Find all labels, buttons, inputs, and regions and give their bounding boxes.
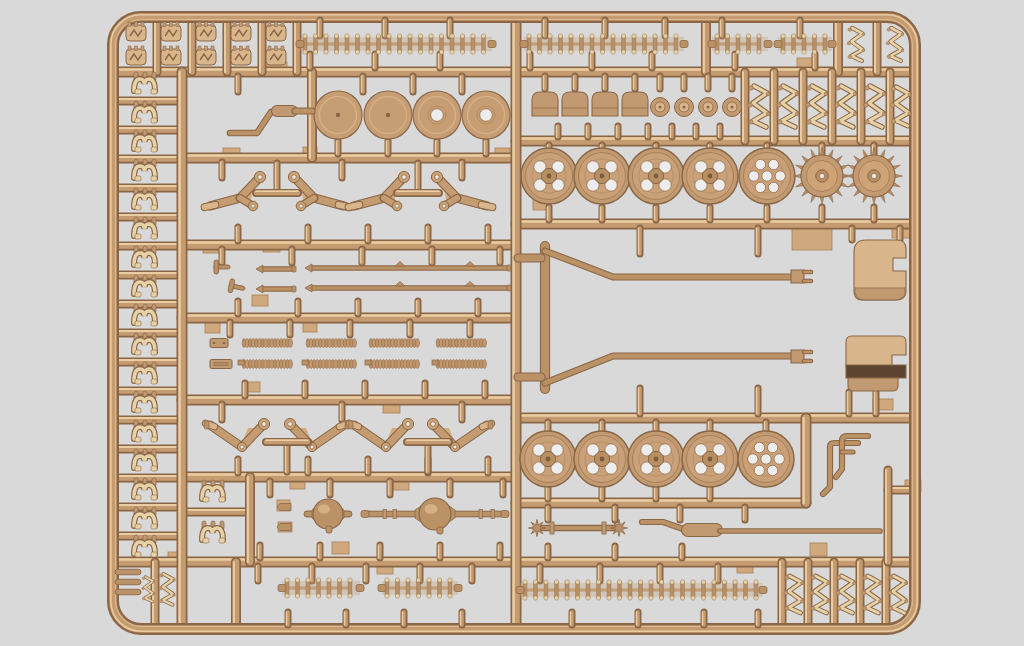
runner-bar	[182, 243, 512, 245]
gate-post	[706, 76, 708, 89]
hatch-part	[562, 92, 588, 116]
tee-crossbar	[397, 191, 439, 193]
gate-post	[650, 54, 652, 68]
gate-post	[258, 545, 260, 558]
gate-post	[603, 20, 605, 36]
idler-wheel	[739, 148, 795, 204]
runner-bar	[859, 72, 861, 141]
runner-bar	[260, 17, 262, 72]
return-roller-disc	[462, 91, 510, 139]
gate-post	[236, 301, 238, 314]
runner-bar	[310, 72, 312, 158]
gate-post	[470, 566, 472, 581]
gate-post	[243, 383, 245, 396]
gate-post	[694, 126, 696, 137]
gate-post	[663, 20, 665, 36]
gate-post	[306, 227, 308, 241]
runner-bar	[113, 418, 182, 420]
hub-cap	[675, 98, 694, 117]
coil-spring	[365, 360, 420, 369]
gate-post	[256, 566, 258, 581]
runner-bar	[113, 157, 182, 159]
runner-bar	[875, 17, 877, 72]
return-roller-disc	[413, 91, 461, 139]
road-wheel	[574, 431, 630, 487]
gate-post	[556, 126, 558, 137]
coil-spring	[436, 339, 487, 348]
hatch-part	[592, 92, 618, 116]
gate-post	[303, 383, 305, 396]
runner-bar	[113, 534, 182, 536]
gate-post	[850, 228, 852, 240]
gate-post	[598, 566, 600, 581]
gate-post	[460, 404, 462, 420]
gate-post	[590, 54, 592, 68]
runner-bar	[113, 302, 182, 304]
drive-sprocket	[846, 148, 903, 205]
gate-post	[336, 141, 338, 154]
gate-post	[646, 126, 648, 137]
road-wheel	[521, 148, 577, 204]
gate-post	[460, 76, 462, 92]
gate-post	[373, 54, 375, 68]
gate-post	[361, 76, 363, 92]
sprue-scene	[0, 0, 1024, 646]
runner-bar	[888, 72, 890, 141]
gate-post	[438, 545, 440, 558]
gate-post	[386, 141, 388, 154]
runner-bar	[113, 99, 182, 101]
track-run	[774, 34, 836, 54]
hub-cap	[699, 98, 718, 117]
tee-stem	[416, 163, 418, 193]
gate-post	[328, 481, 330, 495]
gate-post	[813, 54, 815, 68]
runner-bar	[153, 562, 155, 629]
mounting-plate	[210, 339, 228, 348]
gate-post	[366, 227, 368, 241]
coil-spring	[369, 339, 420, 348]
gate-post	[898, 228, 900, 240]
runner-bar	[858, 562, 860, 629]
runner-bar	[113, 476, 182, 478]
runner-bar	[225, 17, 227, 72]
ejector-pad	[810, 543, 827, 556]
runner-bar	[182, 398, 512, 400]
gate-post	[448, 20, 450, 36]
gate-post	[310, 566, 312, 581]
gate-post	[730, 76, 732, 89]
gate-post	[486, 227, 488, 241]
gate-post	[874, 392, 876, 414]
gate-post	[573, 76, 575, 89]
gate-post	[383, 20, 385, 36]
coil-spring	[306, 339, 357, 348]
tee-crossbar	[407, 440, 449, 442]
gate-post	[228, 322, 230, 335]
runner-bar	[772, 72, 774, 141]
coil-spring	[302, 360, 357, 369]
tee-crossbar	[256, 191, 298, 193]
gate-post	[501, 481, 503, 495]
gate-post	[658, 566, 660, 581]
runner-bar	[516, 222, 915, 224]
idler-wheel	[738, 431, 794, 487]
gate-post	[680, 546, 682, 558]
return-roller-disc	[314, 91, 362, 139]
gate-post	[658, 76, 660, 89]
gate-post	[543, 20, 545, 36]
gate-post	[268, 481, 270, 495]
coil-spring	[432, 360, 487, 369]
road-wheel	[574, 148, 630, 204]
gate-post	[528, 54, 530, 68]
exhaust-muffler	[682, 524, 723, 537]
gate-post	[498, 545, 500, 558]
bracket-plate-b-lip	[848, 378, 898, 391]
ejector-pad	[252, 295, 268, 306]
road-wheel	[628, 148, 684, 204]
runner-bar	[516, 139, 915, 141]
runner-bar	[113, 244, 182, 246]
gate-post	[236, 76, 238, 92]
gate-post	[718, 126, 720, 137]
grille-part	[115, 569, 141, 595]
gate-post	[708, 486, 710, 499]
ejector-pad	[332, 542, 349, 554]
runner-bar	[113, 447, 182, 449]
runner-bar	[832, 562, 834, 629]
gate-post	[546, 486, 548, 499]
gate-post	[484, 141, 486, 154]
gate-post	[702, 612, 704, 625]
gate-post	[306, 459, 308, 473]
coil-spring	[242, 339, 293, 348]
runner-bar	[113, 505, 182, 507]
gate-post	[743, 507, 745, 520]
gate-post	[600, 486, 602, 499]
gate-post	[220, 162, 222, 178]
runner-bar	[182, 510, 250, 512]
return-roller-disc	[364, 91, 412, 139]
gate-post	[435, 141, 437, 154]
tee-crossbar	[266, 440, 308, 442]
gate-post	[638, 228, 640, 254]
small-clip	[277, 524, 291, 531]
gate-post	[468, 322, 470, 335]
gate-post	[613, 546, 615, 558]
gate-post	[603, 76, 605, 89]
gate-post	[847, 392, 849, 414]
gate-post	[633, 76, 635, 89]
runner-bar	[248, 477, 250, 562]
gate-post	[733, 54, 735, 68]
tee-stem	[285, 442, 287, 472]
gate-post	[448, 481, 450, 495]
ejector-pad	[247, 382, 260, 392]
runner-bar	[886, 470, 888, 562]
runner-bar	[516, 416, 915, 418]
gate-post	[356, 301, 358, 314]
gate-post	[378, 545, 380, 558]
gate-post	[426, 227, 428, 241]
coil-spring	[238, 360, 293, 369]
gate-post	[348, 322, 350, 335]
road-wheel	[682, 431, 738, 487]
gate-post	[344, 612, 346, 625]
gate-post	[765, 207, 767, 220]
gate-post	[288, 322, 290, 335]
gate-post	[366, 459, 368, 473]
gate-post	[756, 228, 758, 254]
road-wheel	[628, 431, 684, 487]
gate-post	[586, 126, 588, 137]
small-clip	[277, 504, 291, 511]
gate-post	[290, 249, 292, 263]
gate-post	[220, 404, 222, 420]
gate-post	[636, 612, 638, 625]
gate-post	[546, 507, 548, 520]
runner-bar	[830, 72, 832, 141]
bracket-plate-b-band	[846, 365, 906, 378]
gate-post	[296, 301, 298, 314]
gate-post	[308, 54, 310, 68]
runner-bar	[113, 186, 182, 188]
gate-post	[600, 207, 602, 220]
runner-bar	[182, 316, 512, 318]
gate-post	[486, 459, 488, 473]
gate-post	[678, 507, 680, 520]
gate-post	[411, 76, 413, 92]
bracket-plate-a-shade	[855, 288, 905, 300]
gate-post	[708, 207, 710, 220]
gate-post	[236, 459, 238, 473]
gate-post	[460, 162, 462, 178]
runner-bar	[155, 17, 157, 72]
gate-post	[547, 207, 549, 220]
gate-post	[538, 566, 540, 581]
gate-post	[360, 249, 362, 263]
runner-bar	[113, 215, 182, 217]
gate-post	[423, 383, 425, 396]
gate-post	[236, 227, 238, 241]
tee-stem	[426, 442, 428, 472]
gate-post	[756, 612, 758, 625]
hatch-part	[622, 92, 648, 116]
gate-post	[613, 507, 615, 520]
runner-bar	[190, 17, 192, 72]
sprue-render	[0, 0, 1024, 646]
runner-bar	[780, 562, 782, 629]
gate-post	[716, 566, 718, 581]
runner-bar	[804, 418, 806, 503]
gate-post	[220, 249, 222, 263]
gate-post	[408, 322, 410, 335]
gate-post	[388, 481, 390, 495]
gate-post	[438, 54, 440, 68]
runner-bar	[113, 128, 182, 130]
gate-post	[654, 486, 656, 499]
gate-post	[872, 207, 874, 220]
mounting-plate	[210, 360, 232, 369]
runner-bar	[182, 156, 512, 158]
road-wheel	[682, 148, 738, 204]
gate-post	[543, 76, 545, 89]
gate-post	[460, 612, 462, 625]
hub-cap	[723, 98, 742, 117]
gate-post	[483, 383, 485, 396]
hub-cap	[651, 98, 670, 117]
runner-bar	[806, 562, 808, 629]
runner-bar	[884, 562, 886, 629]
gate-post	[798, 20, 800, 36]
gate-post	[616, 126, 618, 137]
gate-post	[318, 20, 320, 36]
ejector-pad	[792, 226, 832, 250]
gate-post	[364, 566, 366, 581]
tee-stem	[275, 163, 277, 193]
road-wheel	[520, 431, 576, 487]
runner-bar	[182, 475, 512, 477]
gate-post	[498, 249, 500, 263]
gate-post	[402, 612, 404, 625]
runner-bar	[516, 501, 806, 503]
gate-post	[476, 301, 478, 314]
gate-post	[682, 76, 684, 89]
gate-post	[638, 388, 640, 414]
gate-post	[430, 249, 432, 263]
gate-post	[570, 612, 572, 625]
gate-post	[340, 404, 342, 420]
hatch-part	[532, 92, 558, 116]
gate-post	[363, 383, 365, 396]
gate-post	[820, 207, 822, 220]
gate-post	[286, 612, 288, 625]
gate-post	[654, 207, 656, 220]
runner-bar	[113, 360, 182, 362]
gate-post	[340, 162, 342, 178]
drive-sprocket	[794, 148, 851, 205]
runner-bar	[113, 273, 182, 275]
runner-bar	[113, 389, 182, 391]
runner-bar	[743, 72, 745, 141]
runner-bar	[514, 17, 516, 629]
gate-post	[546, 546, 548, 558]
gate-post	[720, 20, 722, 36]
runner-bar	[801, 72, 803, 141]
runner-bar	[180, 72, 182, 629]
gate-post	[756, 388, 758, 414]
runner-bar	[704, 17, 706, 72]
runner-bar	[234, 562, 236, 629]
gate-post	[670, 126, 672, 137]
runner-bar	[113, 331, 182, 333]
gate-post	[318, 545, 320, 558]
gate-post	[416, 301, 418, 314]
